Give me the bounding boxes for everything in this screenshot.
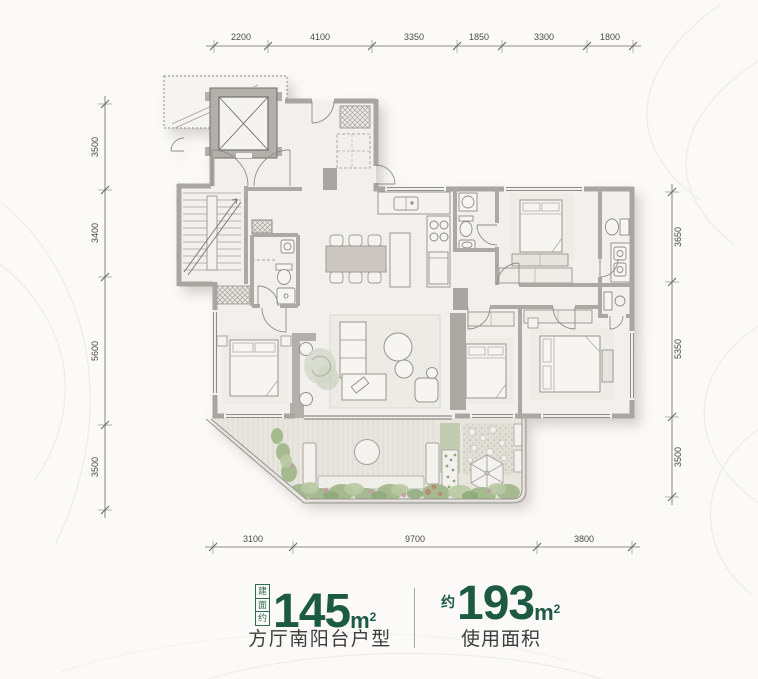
wall-stub	[323, 168, 337, 190]
coffee-table	[384, 333, 412, 361]
caption-divider	[414, 588, 415, 648]
partition-pier	[450, 313, 466, 410]
dim-right-3: 3500	[673, 447, 683, 467]
floor-plan	[164, 76, 634, 503]
dining-table	[326, 246, 386, 272]
dim-left-2: 3400	[90, 223, 100, 243]
toilet-icon	[278, 270, 291, 285]
area-caption: 建 面 约 145 m 2 方厅南阳台户型 约 193 m 2 使用面积	[0, 578, 758, 668]
use-area-group: 约 193 m 2	[441, 584, 560, 624]
sofa	[340, 322, 366, 378]
armchair	[415, 378, 438, 402]
unit-sup: 2	[370, 612, 377, 622]
use-area-label: 使用面积	[446, 624, 556, 651]
shower-tray	[277, 288, 295, 304]
dim-bottom-2: 9700	[405, 534, 425, 544]
unit-sup: 2	[554, 604, 561, 614]
build-area-tag: 建 面 约	[255, 584, 270, 626]
dim-top-4: 1850	[469, 32, 489, 42]
outdoor-table	[355, 440, 380, 465]
floorplan-page: 2200 4100 3350 1850 3300 1800 3500 3400 …	[0, 0, 758, 679]
dim-top-6: 1800	[600, 32, 620, 42]
dim-top-2: 4100	[310, 32, 330, 42]
bed	[466, 344, 506, 398]
bed	[520, 200, 562, 252]
tag-char-2: 面	[256, 599, 269, 613]
elevator-shaft	[205, 88, 282, 158]
tag-char-3: 约	[256, 612, 269, 625]
dim-top-1: 2200	[231, 32, 251, 42]
bed	[230, 340, 278, 396]
oven	[429, 252, 448, 284]
dining-set	[326, 235, 386, 283]
dim-right-1: 3650	[673, 227, 683, 247]
hall-pier	[453, 288, 468, 310]
toilet-icon	[460, 222, 472, 237]
dim-left-1: 3500	[90, 137, 100, 157]
tag-char-1: 建	[256, 585, 269, 599]
dim-left-4: 3500	[90, 457, 100, 477]
use-area-prefix: 约	[441, 592, 455, 612]
kitchen-island	[390, 233, 410, 287]
dim-left-3: 5600	[90, 341, 100, 361]
build-area-label: 方厅南阳台户型	[237, 624, 403, 651]
dim-bottom-1: 3100	[243, 534, 263, 544]
use-area-unit: m 2	[534, 604, 560, 622]
dim-bottom-3: 3800	[574, 534, 594, 544]
dresser	[499, 268, 572, 283]
bedroom-top-right	[499, 194, 574, 283]
toilet-icon	[606, 219, 619, 235]
bed	[540, 336, 600, 392]
use-area-value: 193	[457, 584, 534, 624]
unit-m: m	[534, 604, 554, 622]
dim-top-3: 3350	[404, 32, 424, 42]
dim-top-5: 3300	[534, 32, 554, 42]
dim-right-2: 5350	[673, 339, 683, 359]
bench	[602, 350, 613, 382]
sink	[281, 240, 294, 253]
